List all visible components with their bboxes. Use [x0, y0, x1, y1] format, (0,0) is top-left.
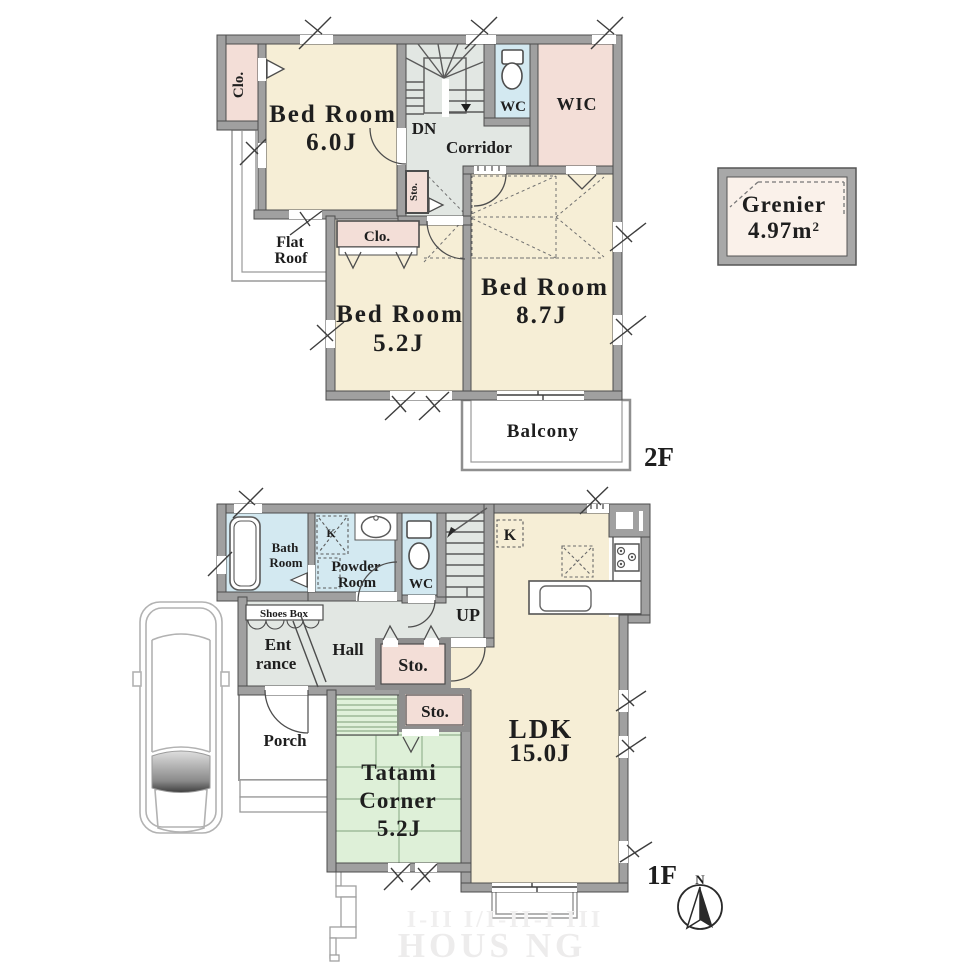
svg-text:Sto.: Sto. — [421, 702, 449, 721]
svg-text:5.2J: 5.2J — [373, 330, 425, 357]
svg-text:Flat: Flat — [276, 234, 304, 251]
svg-text:DN: DN — [412, 119, 437, 138]
svg-text:Porch: Porch — [263, 731, 307, 750]
svg-text:Bed Room: Bed Room — [269, 101, 397, 128]
svg-text:1F: 1F — [647, 860, 677, 890]
svg-text:4.97m2: 4.97m2 — [748, 218, 820, 243]
svg-text:5.2J: 5.2J — [377, 816, 421, 841]
svg-text:rance: rance — [256, 654, 297, 673]
svg-text:WC: WC — [409, 577, 433, 592]
svg-text:Roof: Roof — [275, 250, 309, 267]
svg-text:WC: WC — [500, 99, 526, 115]
svg-text:Corner: Corner — [359, 788, 437, 813]
svg-text:Bath: Bath — [272, 540, 300, 555]
svg-text:Clo.: Clo. — [231, 72, 247, 99]
svg-text:I-II I/I-II-I III: I-II I/I-II-I III — [407, 907, 603, 933]
svg-text:N: N — [695, 872, 705, 887]
svg-text:Ent: Ent — [265, 635, 292, 654]
svg-text:Room: Room — [338, 575, 377, 591]
svg-text:2F: 2F — [644, 442, 674, 472]
svg-text:15.0J: 15.0J — [509, 740, 570, 767]
svg-text:8.7J: 8.7J — [516, 302, 568, 329]
svg-text:Hall: Hall — [332, 640, 363, 659]
svg-text:UP: UP — [456, 605, 480, 625]
svg-text:Grenier: Grenier — [742, 192, 827, 217]
svg-text:Sto.: Sto. — [398, 655, 428, 675]
svg-text:Corridor: Corridor — [446, 138, 513, 157]
svg-text:WIC: WIC — [556, 94, 597, 114]
svg-text:K: K — [326, 526, 336, 540]
svg-text:Sto.: Sto. — [408, 183, 420, 201]
svg-text:6.0J: 6.0J — [306, 129, 358, 156]
svg-text:K: K — [504, 527, 517, 544]
svg-text:Bed Room: Bed Room — [336, 301, 464, 328]
svg-text:Powder: Powder — [331, 559, 380, 575]
svg-text:Bed Room: Bed Room — [481, 274, 609, 301]
svg-text:Room: Room — [269, 555, 302, 570]
svg-text:Balcony: Balcony — [507, 421, 579, 442]
svg-text:Clo.: Clo. — [364, 229, 391, 245]
svg-text:Tatami: Tatami — [361, 760, 436, 785]
